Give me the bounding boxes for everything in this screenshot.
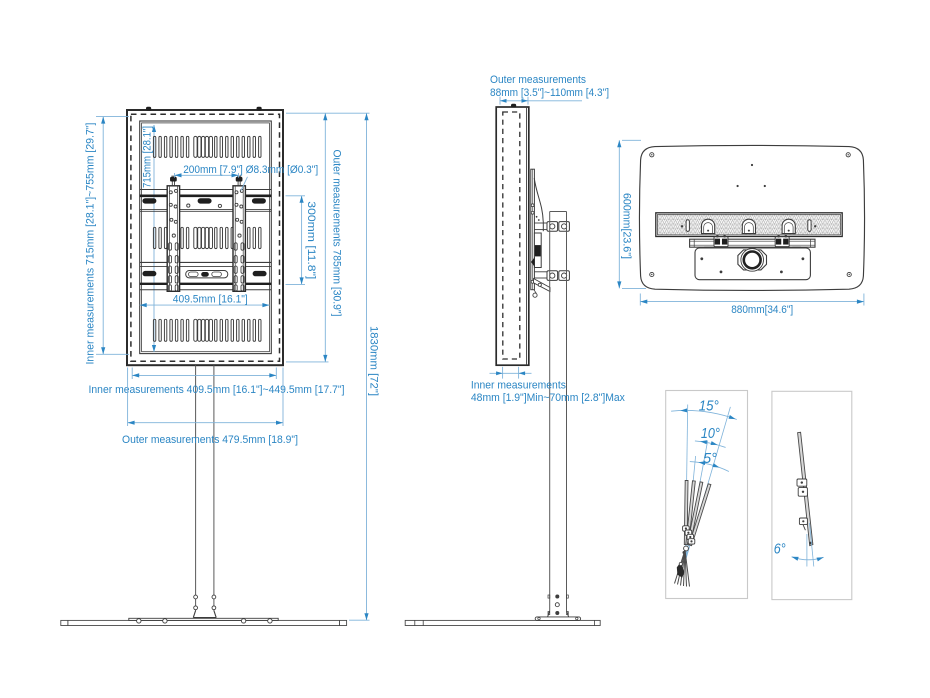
svg-text:200mm [7.9"] Ø8.3mm [Ø0.3"]: 200mm [7.9"] Ø8.3mm [Ø0.3"] bbox=[183, 164, 318, 176]
svg-text:Outer measurements 479.5mm [18: Outer measurements 479.5mm [18.9"] bbox=[122, 434, 298, 446]
svg-text:6°: 6° bbox=[774, 542, 786, 558]
svg-text:88mm [3.5"]~110mm [4.3"]: 88mm [3.5"]~110mm [4.3"] bbox=[490, 87, 609, 99]
svg-text:10°: 10° bbox=[701, 426, 720, 442]
svg-text:48mm [1.9"]Min~70mm [2.8"]Max: 48mm [1.9"]Min~70mm [2.8"]Max bbox=[471, 392, 626, 404]
svg-text:Outer measurements 785mm [30.9: Outer measurements 785mm [30.9"] bbox=[331, 150, 343, 317]
svg-text:5°: 5° bbox=[703, 451, 717, 467]
svg-text:Inner measurements 715mm [28.1: Inner measurements 715mm [28.1"]~755mm [… bbox=[85, 123, 97, 365]
svg-text:300mm [11.8"]: 300mm [11.8"] bbox=[305, 201, 317, 279]
svg-text:880mm[34.6"]: 880mm[34.6"] bbox=[731, 304, 793, 316]
svg-text:409.5mm [16.1"]: 409.5mm [16.1"] bbox=[173, 294, 248, 306]
svg-text:15°: 15° bbox=[699, 398, 719, 414]
svg-text:Inner measurements: Inner measurements bbox=[471, 379, 567, 391]
svg-text:Outer measurements: Outer measurements bbox=[490, 74, 587, 86]
svg-text:Inner measurements 409.5mm [16: Inner measurements 409.5mm [16.1"]~449.5… bbox=[89, 384, 345, 396]
svg-text:600mm[23.6"]: 600mm[23.6"] bbox=[620, 193, 632, 259]
svg-text:1830mm [72"]: 1830mm [72"] bbox=[368, 326, 380, 396]
svg-text:715mm [28.1"]: 715mm [28.1"] bbox=[142, 126, 154, 188]
